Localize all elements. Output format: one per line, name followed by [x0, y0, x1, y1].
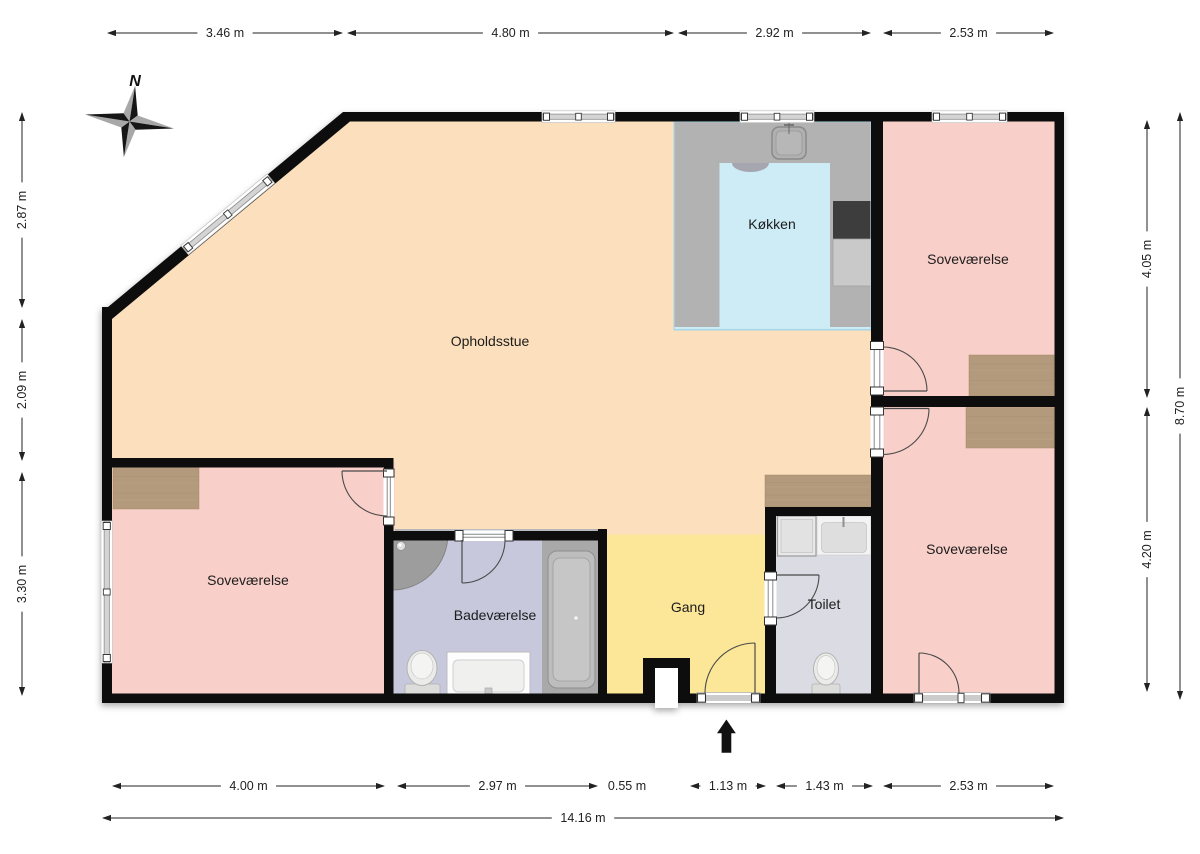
svg-text:Toilet: Toilet: [808, 596, 841, 612]
svg-text:Soveværelse: Soveværelse: [926, 541, 1008, 557]
svg-text:4.20 m: 4.20 m: [1140, 530, 1154, 568]
svg-text:0.55 m: 0.55 m: [608, 779, 646, 793]
svg-text:Soveværelse: Soveværelse: [207, 572, 289, 588]
svg-text:1.13 m: 1.13 m: [709, 779, 747, 793]
svg-text:14.16 m: 14.16 m: [560, 811, 605, 825]
svg-text:2.87 m: 2.87 m: [15, 191, 29, 229]
svg-text:2.92 m: 2.92 m: [755, 26, 793, 40]
svg-text:Køkken: Køkken: [748, 216, 795, 232]
svg-text:4.00 m: 4.00 m: [229, 779, 267, 793]
svg-text:Badeværelse: Badeværelse: [454, 607, 537, 623]
svg-text:2.97 m: 2.97 m: [478, 779, 516, 793]
svg-text:4.05 m: 4.05 m: [1140, 240, 1154, 278]
svg-text:8.70 m: 8.70 m: [1173, 387, 1187, 425]
svg-text:2.09 m: 2.09 m: [15, 371, 29, 409]
svg-text:3.46 m: 3.46 m: [206, 26, 244, 40]
svg-text:Gang: Gang: [671, 599, 705, 615]
svg-text:3.30 m: 3.30 m: [15, 565, 29, 603]
svg-text:Soveværelse: Soveværelse: [927, 251, 1009, 267]
svg-text:1.43 m: 1.43 m: [805, 779, 843, 793]
svg-text:2.53 m: 2.53 m: [949, 779, 987, 793]
svg-text:N: N: [129, 73, 141, 90]
svg-text:2.53 m: 2.53 m: [949, 26, 987, 40]
svg-text:Opholdsstue: Opholdsstue: [451, 333, 530, 349]
svg-text:4.80 m: 4.80 m: [491, 26, 529, 40]
